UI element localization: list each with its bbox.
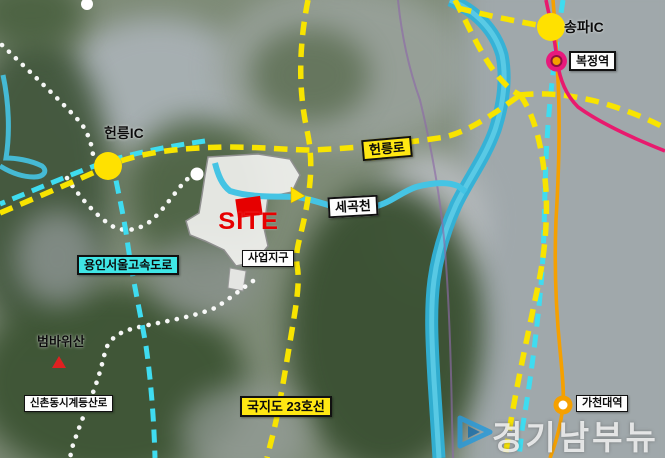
label-national-road-23: 국지도 23호선: [240, 396, 332, 417]
heonneung-ic-circle: [94, 152, 122, 180]
label-gacheon-station: 가천대역: [576, 395, 628, 412]
label-heonneung-ic: 헌릉IC: [104, 126, 144, 140]
label-heonneung-ro: 헌릉로: [361, 136, 413, 161]
map-overlay-graphics: [0, 0, 665, 458]
yongin-seoul-expressway-route: [112, 160, 155, 458]
trail-dotted-northwest: [2, 45, 93, 155]
label-songpa-ic: 송파IC: [564, 20, 604, 34]
bokjeong-station-marker: [546, 51, 567, 72]
mountain-peak-icon: [52, 356, 66, 368]
songpa-ic-circle: [537, 13, 565, 41]
label-bokjeong-station: 복정역: [569, 51, 616, 71]
news-watermark-text: 경기남부뉴스: [492, 411, 665, 458]
road-east-from-junction: [520, 94, 665, 128]
trail-endpoint-dot-site: [191, 168, 204, 181]
label-business-district: 사업지구: [242, 250, 294, 267]
map-canvas: 헌릉IC 송파IC 복정역 헌릉로 세곡천 SITE 사업지구 용인서울고속도로…: [0, 0, 665, 458]
label-beombawi-mountain: 범바위산: [37, 335, 85, 348]
label-segok-stream: 세곡천: [327, 195, 378, 219]
trail-dotted-hill-loop: [67, 174, 195, 230]
trail-dotted-south: [70, 281, 253, 458]
label-site: SITE: [218, 210, 279, 234]
stream-left-edge: [0, 75, 45, 177]
news-logo-icon: [460, 418, 490, 446]
label-yongin-seoul-expressway: 용인서울고속도로: [77, 255, 179, 275]
trail-endpoint-dot-top: [81, 0, 93, 10]
label-sinchon-trail: 신촌동시계등산로: [24, 395, 113, 412]
